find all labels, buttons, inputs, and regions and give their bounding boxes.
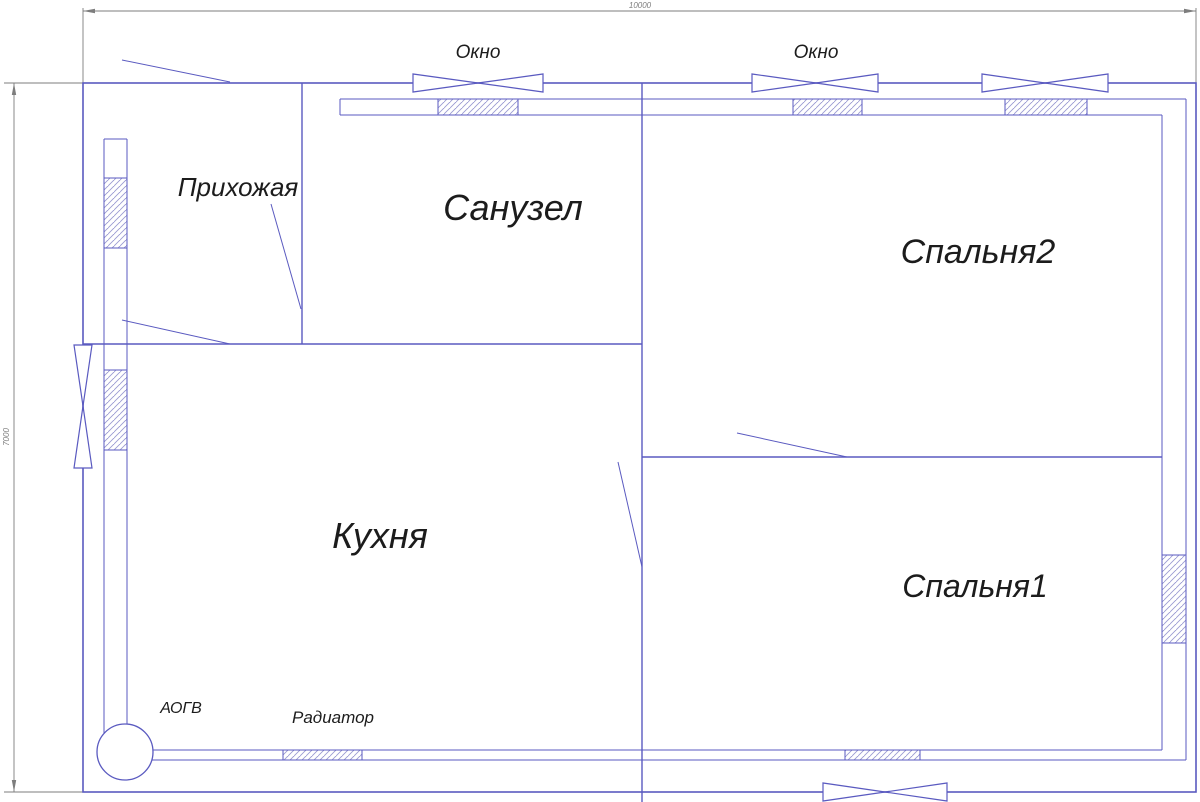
window-icon <box>752 74 878 92</box>
dimension-label-width: 10000 <box>629 1 652 10</box>
dimension-lines <box>4 8 1196 792</box>
door-swing-entrance <box>122 60 230 82</box>
boiler-circle <box>97 724 153 780</box>
radiator-hatch-top3 <box>1005 99 1087 115</box>
doors <box>122 60 847 567</box>
floor-plan-canvas: Окно Окно Прихожая Санузел Спальня2 Кухн… <box>0 0 1200 802</box>
window-icon <box>823 783 947 801</box>
window-icon <box>982 74 1108 92</box>
door-swing-center <box>618 462 642 567</box>
room-label-kitchen: Кухня <box>332 515 428 556</box>
window-label-1: Окно <box>456 42 501 63</box>
radiator-label: Радиатор <box>292 708 374 727</box>
floor-plan-drawing: Окно Окно Прихожая Санузел Спальня2 Кухн… <box>0 0 1200 802</box>
door-swing-bedroom1 <box>737 433 847 457</box>
boiler-label: АОГВ <box>159 700 202 717</box>
radiator-hatch-top1 <box>438 99 518 115</box>
arrow-icon <box>12 83 16 95</box>
radiator-hatch-left2 <box>104 370 127 450</box>
room-label-bedroom2: Спальня2 <box>901 233 1056 271</box>
dimension-label-height: 7000 <box>2 428 11 446</box>
radiator-hatch-bottom1 <box>283 750 362 760</box>
room-label-bedroom1: Спальня1 <box>902 568 1048 604</box>
window-icon <box>74 345 92 468</box>
window-label-2: Окно <box>794 42 839 63</box>
door-swing-kitchen <box>122 320 230 344</box>
radiator-hatch-left1 <box>104 178 127 248</box>
radiator-hatch-right <box>1162 555 1186 643</box>
room-label-bathroom: Санузел <box>443 187 583 228</box>
window-icon <box>413 74 543 92</box>
radiator-hatch-bottom2 <box>845 750 920 760</box>
room-label-hallway: Прихожая <box>178 172 299 202</box>
dimension-arrows <box>12 9 1196 792</box>
radiator-hatch-top2 <box>793 99 862 115</box>
arrow-icon <box>1184 9 1196 13</box>
arrow-icon <box>83 9 95 13</box>
arrow-icon <box>12 780 16 792</box>
door-swing-bathroom <box>271 204 301 309</box>
